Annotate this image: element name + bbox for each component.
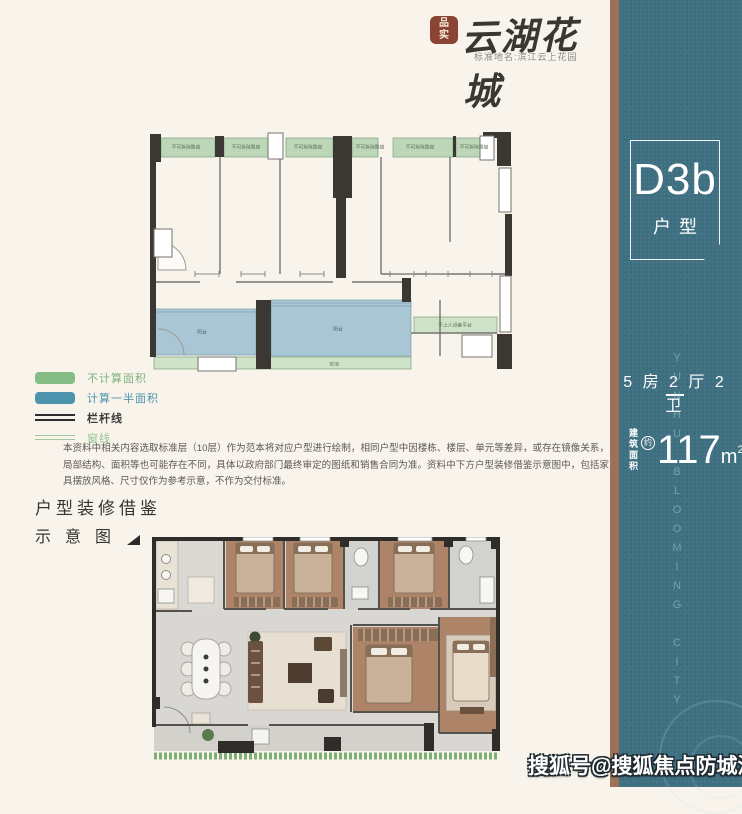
- strip-label: 不可拆除飘窗: [294, 143, 323, 150]
- strip-label: 不可拆除飘窗: [356, 143, 385, 150]
- furnished-floorplan: [148, 537, 520, 765]
- unit-type-label: 户型: [639, 213, 719, 239]
- area-unit: m: [721, 446, 738, 468]
- blue-swatch-icon: [35, 392, 75, 404]
- vertical-brand-text: YUNHU BLOOMING CITY: [671, 352, 683, 762]
- legend-item-half-area: 计算一半面积: [35, 391, 159, 404]
- bed-master: [446, 635, 496, 714]
- area-prefix: 建筑 面积: [629, 428, 639, 472]
- disclaimer-text: 本资料中相关内容选取标准层（10层）作为范本将对应户型进行绘制，相同户型中因楼栋…: [63, 441, 609, 491]
- window-line-icon: [35, 435, 75, 440]
- area-unit-sup: 2: [737, 444, 742, 456]
- flowerbed-label: 花池: [329, 360, 339, 367]
- legend-item-no-area: 不计算面积: [35, 371, 159, 384]
- brand-logo: 品 实 云湖花城 标准地名:滨江云上花园: [400, 8, 610, 68]
- brand-seal-icon: 品 实: [430, 16, 458, 44]
- teal-sidebar: D3b 户型 5 房 2 厅 2 卫 建筑 面积 约 117m2 YUNHU B…: [619, 0, 742, 787]
- strip-label: 不可拆除飘窗: [172, 143, 201, 150]
- section-title: 户型装修借鉴 示意图: [35, 494, 161, 547]
- section-title-line2: 示意图: [35, 523, 161, 547]
- living-room: [248, 632, 347, 711]
- strip-label: 不可拆除飘窗: [406, 143, 435, 150]
- area-row: 建筑 面积 约 117m2: [629, 428, 739, 472]
- balcony-label: 阳台: [197, 328, 207, 335]
- area-figure: 117m2: [657, 430, 742, 470]
- legend-label: 计算一半面积: [87, 390, 159, 406]
- approx-mark: 约: [641, 436, 655, 450]
- furnished-drawing: [148, 537, 520, 765]
- unit-code-box: D3b 户型: [630, 140, 720, 260]
- area-prefix-line2: 面积: [629, 450, 639, 472]
- kitchen: [154, 539, 224, 611]
- bed: [236, 543, 274, 593]
- section-title-line2-text: 示意图: [35, 523, 125, 547]
- plant-icon: [250, 632, 261, 643]
- railing-line-icon: [35, 414, 75, 421]
- plan-legend: 不计算面积 计算一半面积 栏杆线 窗线: [35, 371, 159, 444]
- brown-divider: [610, 0, 619, 787]
- section-title-line1: 户型装修借鉴: [35, 494, 161, 519]
- bed: [394, 543, 434, 593]
- area-prefix-line1: 建筑: [629, 428, 639, 450]
- strip-label: 不可拆除飘窗: [460, 143, 489, 150]
- watermark-text: 搜狐号@搜狐焦点防城港站: [528, 750, 742, 780]
- legend-label: 不计算面积: [87, 370, 147, 386]
- plant-icon: [202, 729, 214, 741]
- strip-label: 不可拆除飘窗: [232, 143, 261, 150]
- bed: [366, 645, 412, 703]
- green-swatch-icon: [35, 372, 75, 384]
- schematic-floorplan: 不可拆除飘窗 不可拆除飘窗 不可拆除飘窗 不可拆除飘窗 不可拆除飘窗 不可拆除飘…: [140, 124, 525, 376]
- legend-label: 栏杆线: [87, 410, 123, 426]
- equipment-strip-label: 不上人设备平台: [438, 321, 472, 328]
- dining-set: [181, 639, 231, 699]
- half-area-balconies: [154, 300, 411, 356]
- bed: [294, 543, 332, 593]
- triangle-icon: [127, 535, 140, 545]
- poster-page: 品 实 云湖花城 标准地名:滨江云上花园: [0, 0, 742, 787]
- legend-item-railing: 栏杆线: [35, 411, 159, 424]
- schematic-drawing: [140, 124, 525, 376]
- area-value: 117: [657, 428, 721, 472]
- balcony-label: 阳台: [333, 325, 343, 332]
- brand-subtitle: 标准地名:滨江云上花园: [474, 50, 578, 63]
- unit-code: D3b: [631, 155, 719, 205]
